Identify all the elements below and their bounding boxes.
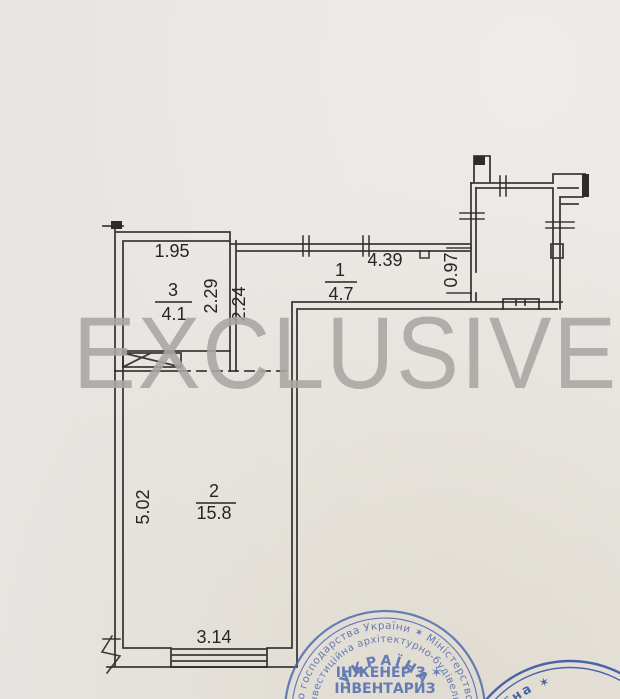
room2-area-label: 15.8 xyxy=(196,503,231,523)
section-mark-right xyxy=(582,174,589,197)
watermark-text: EXCLUSIVE xyxy=(73,296,618,410)
floor-plan-scan: 1.95 3 4.1 2.29 2.24 1 4.7 4.39 0.97 2 1… xyxy=(0,0,620,699)
room1-number-label: 1 xyxy=(335,260,345,280)
dim-hall-end-width: 0.97 xyxy=(441,252,461,287)
room2-number-label: 2 xyxy=(209,481,219,501)
dim-room2-width: 3.14 xyxy=(196,627,231,647)
stamp-left-center-line1: ІНЖЕНЕР З ✶ xyxy=(336,665,443,681)
dim-room2-depth: 5.02 xyxy=(133,489,153,524)
dim-room3-width: 1.95 xyxy=(154,241,189,261)
dim-hall-length: 4.39 xyxy=(367,250,402,270)
section-mark-top-left xyxy=(111,221,122,229)
section-mark-flange xyxy=(474,156,485,165)
floor-plan-svg: 1.95 3 4.1 2.29 2.24 1 4.7 4.39 0.97 2 1… xyxy=(0,0,620,699)
stamp-left-center-line2: ІНВЕНТАРИЗ xyxy=(334,681,435,697)
